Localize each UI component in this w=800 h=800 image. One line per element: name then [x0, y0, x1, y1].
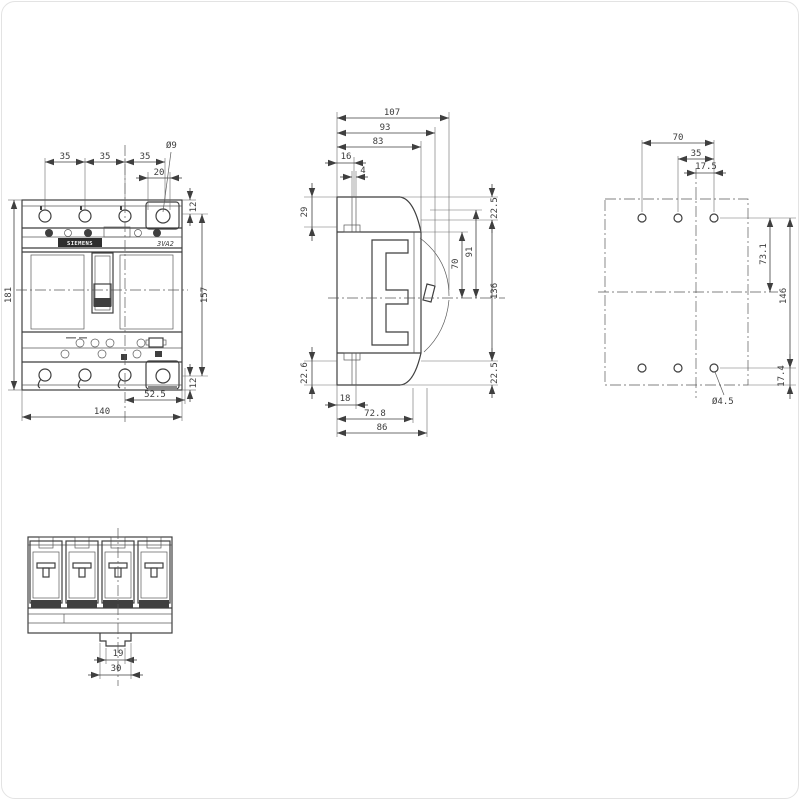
- dim-side-bottom-recess: 22.6: [300, 362, 310, 384]
- dim-side-mount-depth: 86: [377, 423, 388, 433]
- dim-front-top-margin: 12: [189, 202, 199, 213]
- mounting-hole: [710, 214, 718, 222]
- dim-side-foot-depth: 18: [340, 394, 351, 404]
- dim-front-pitch-2: 35: [100, 152, 111, 162]
- bottom-outline: [28, 537, 172, 633]
- dim-bottom-foot-notch: 19: [113, 649, 124, 659]
- technical-drawing-page: SIEMENS 3VA2: [0, 0, 800, 800]
- din-rail-foot: [100, 633, 131, 646]
- terminal-hole: [39, 210, 51, 222]
- dim-side-top-recess: 29: [300, 207, 310, 218]
- dim-side-inner-b: 91: [465, 247, 475, 258]
- dim-front-overall-width: 140: [94, 407, 110, 417]
- mounting-hole: [710, 364, 718, 372]
- mounting-hole: [674, 214, 682, 222]
- dim-side-base-depth: 72.8: [364, 409, 386, 419]
- terminal-hole: [79, 210, 91, 222]
- dim-front-terminal-offset: 20: [154, 168, 165, 178]
- dim-front-center-to-edge: 52.5: [144, 390, 166, 400]
- bottom-view: 19 30: [28, 528, 172, 686]
- dim-front-overall-height: 181: [4, 287, 14, 303]
- front-view: SIEMENS 3VA2: [4, 140, 210, 425]
- dim-drill-bottom-offset: 17.4: [777, 365, 787, 387]
- side-view: 107 93 83 16 4 29 22.6: [300, 108, 505, 437]
- dim-bottom-foot-width: 30: [111, 664, 122, 674]
- dim-side-depth-handle: 93: [380, 123, 391, 133]
- dim-side-depth-front: 83: [373, 137, 384, 147]
- dim-drill-half-pitch: 17.5: [695, 162, 717, 172]
- mounting-hole: [638, 214, 646, 222]
- dim-side-rail-offset: 16: [341, 152, 352, 162]
- dim-drill-pitch-outer: 70: [673, 133, 684, 143]
- brand-label: SIEMENS: [67, 241, 93, 247]
- side-toggle: [423, 284, 435, 302]
- dim-drill-pitch: 35: [691, 149, 702, 159]
- model-label: 3VA2: [156, 240, 174, 248]
- dim-side-inner-a: 70: [451, 259, 461, 270]
- dim-front-body-height: 157: [200, 287, 210, 303]
- side-internal-contour: [372, 240, 408, 345]
- dim-drill-center-to-holes: 73.1: [759, 243, 769, 265]
- dim-front-hole-dia: Ø9: [166, 140, 177, 151]
- dim-drill-hole-dia: Ø4.5: [712, 396, 734, 407]
- dim-drill-hole-span: 146: [779, 288, 789, 304]
- dim-side-top-margin: 22.5: [490, 197, 500, 219]
- mounting-hole: [638, 364, 646, 372]
- dim-side-rail-gap: 4: [360, 166, 365, 176]
- dim-front-pitch-1: 35: [60, 152, 71, 162]
- dimension-drawing: SIEMENS 3VA2: [0, 0, 800, 800]
- dim-side-depth-overall: 107: [384, 108, 400, 118]
- accessory-connector: [149, 338, 163, 347]
- dim-front-bottom-margin: 12: [189, 378, 199, 389]
- mounting-hole: [674, 364, 682, 372]
- dim-side-body-height: 136: [490, 283, 500, 299]
- drilling-plan-view: 70 35 17.5 73.1 146 17.4 Ø4.5: [598, 133, 796, 407]
- bottom-pole-modules: [30, 537, 170, 608]
- dim-side-bottom-margin: 22.5: [490, 362, 500, 384]
- dim-front-pitch-3: 35: [140, 152, 151, 162]
